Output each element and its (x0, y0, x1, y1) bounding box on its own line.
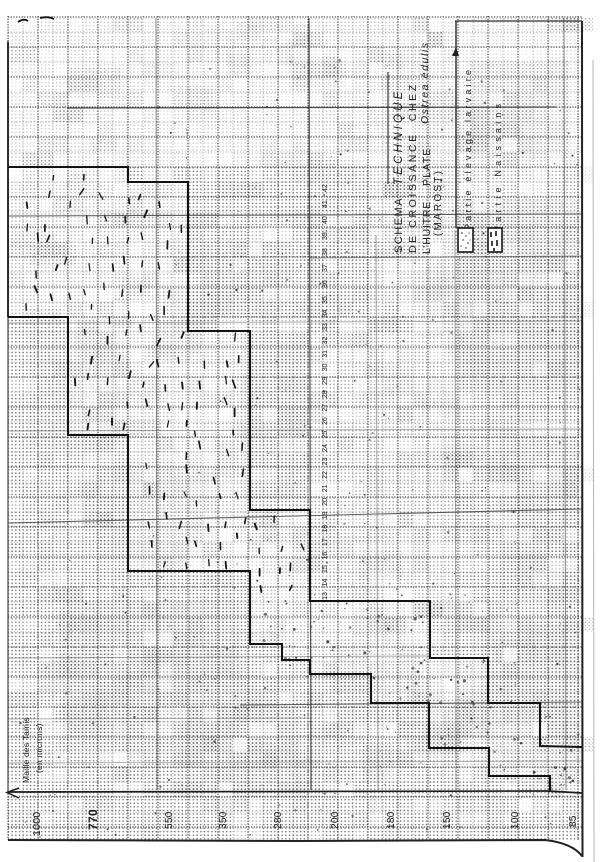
svg-text:36: 36 (322, 280, 329, 288)
svg-text:L’HUITRE: L’HUITRE (421, 201, 433, 254)
svg-text:19: 19 (322, 511, 329, 519)
svg-text:29: 29 (322, 377, 329, 385)
svg-text:22: 22 (322, 471, 329, 479)
svg-text:180: 180 (386, 811, 397, 829)
svg-text:Maille des Tamis: Maille des Tamis (21, 717, 31, 783)
svg-text:38: 38 (322, 248, 329, 256)
svg-text:15: 15 (322, 565, 329, 573)
svg-text:28: 28 (322, 390, 329, 398)
svg-text:350: 350 (218, 811, 229, 829)
svg-text:37: 37 (322, 264, 329, 272)
svg-text:150: 150 (442, 811, 453, 829)
svg-text:Ostrea édulis: Ostrea édulis (419, 41, 431, 124)
svg-text:13: 13 (322, 592, 329, 600)
svg-text:35: 35 (322, 296, 329, 304)
svg-text:200: 200 (330, 811, 341, 829)
svg-text:770: 770 (86, 809, 100, 830)
svg-text:25: 25 (322, 431, 329, 439)
svg-text:17: 17 (322, 538, 329, 546)
svg-text:550: 550 (164, 811, 175, 829)
svg-text:1000: 1000 (31, 811, 43, 836)
svg-text:DE CROISSANCE CHEZ: DE CROISSANCE CHEZ (407, 82, 419, 253)
svg-text:31: 31 (322, 350, 329, 358)
svg-text:41: 41 (322, 200, 329, 208)
svg-text:40: 40 (322, 216, 329, 224)
svg-text:27: 27 (322, 404, 329, 412)
svg-text:33: 33 (322, 323, 329, 331)
svg-text:21: 21 (322, 484, 329, 492)
svg-text:Partie élevage larvaire: Partie élevage larvaire (463, 67, 473, 230)
svg-text:42: 42 (322, 184, 329, 192)
svg-text:26: 26 (322, 417, 329, 425)
svg-text:Partie Naissains: Partie Naissains (493, 100, 503, 232)
svg-text:39: 39 (322, 232, 329, 240)
svg-text:(en microns): (en microns) (34, 723, 44, 773)
svg-text:85: 85 (568, 815, 579, 827)
svg-text:100: 100 (510, 811, 521, 829)
svg-text:18: 18 (322, 525, 329, 533)
svg-text:34: 34 (322, 310, 329, 318)
svg-text:16: 16 (322, 552, 329, 560)
svg-text:280: 280 (273, 811, 284, 829)
svg-text:32: 32 (322, 336, 329, 344)
svg-text:30: 30 (322, 363, 329, 371)
svg-text:24: 24 (322, 444, 329, 452)
svg-text:PLATE: PLATE (421, 148, 433, 186)
svg-text:(MAROST): (MAROST) (433, 169, 444, 236)
svg-text:23: 23 (322, 458, 329, 466)
svg-text:TECHNIQUE: TECHNIQUE (393, 88, 405, 185)
svg-text:14: 14 (322, 579, 329, 587)
svg-text:20: 20 (322, 498, 329, 506)
svg-text:SCHEMA: SCHEMA (393, 197, 405, 253)
